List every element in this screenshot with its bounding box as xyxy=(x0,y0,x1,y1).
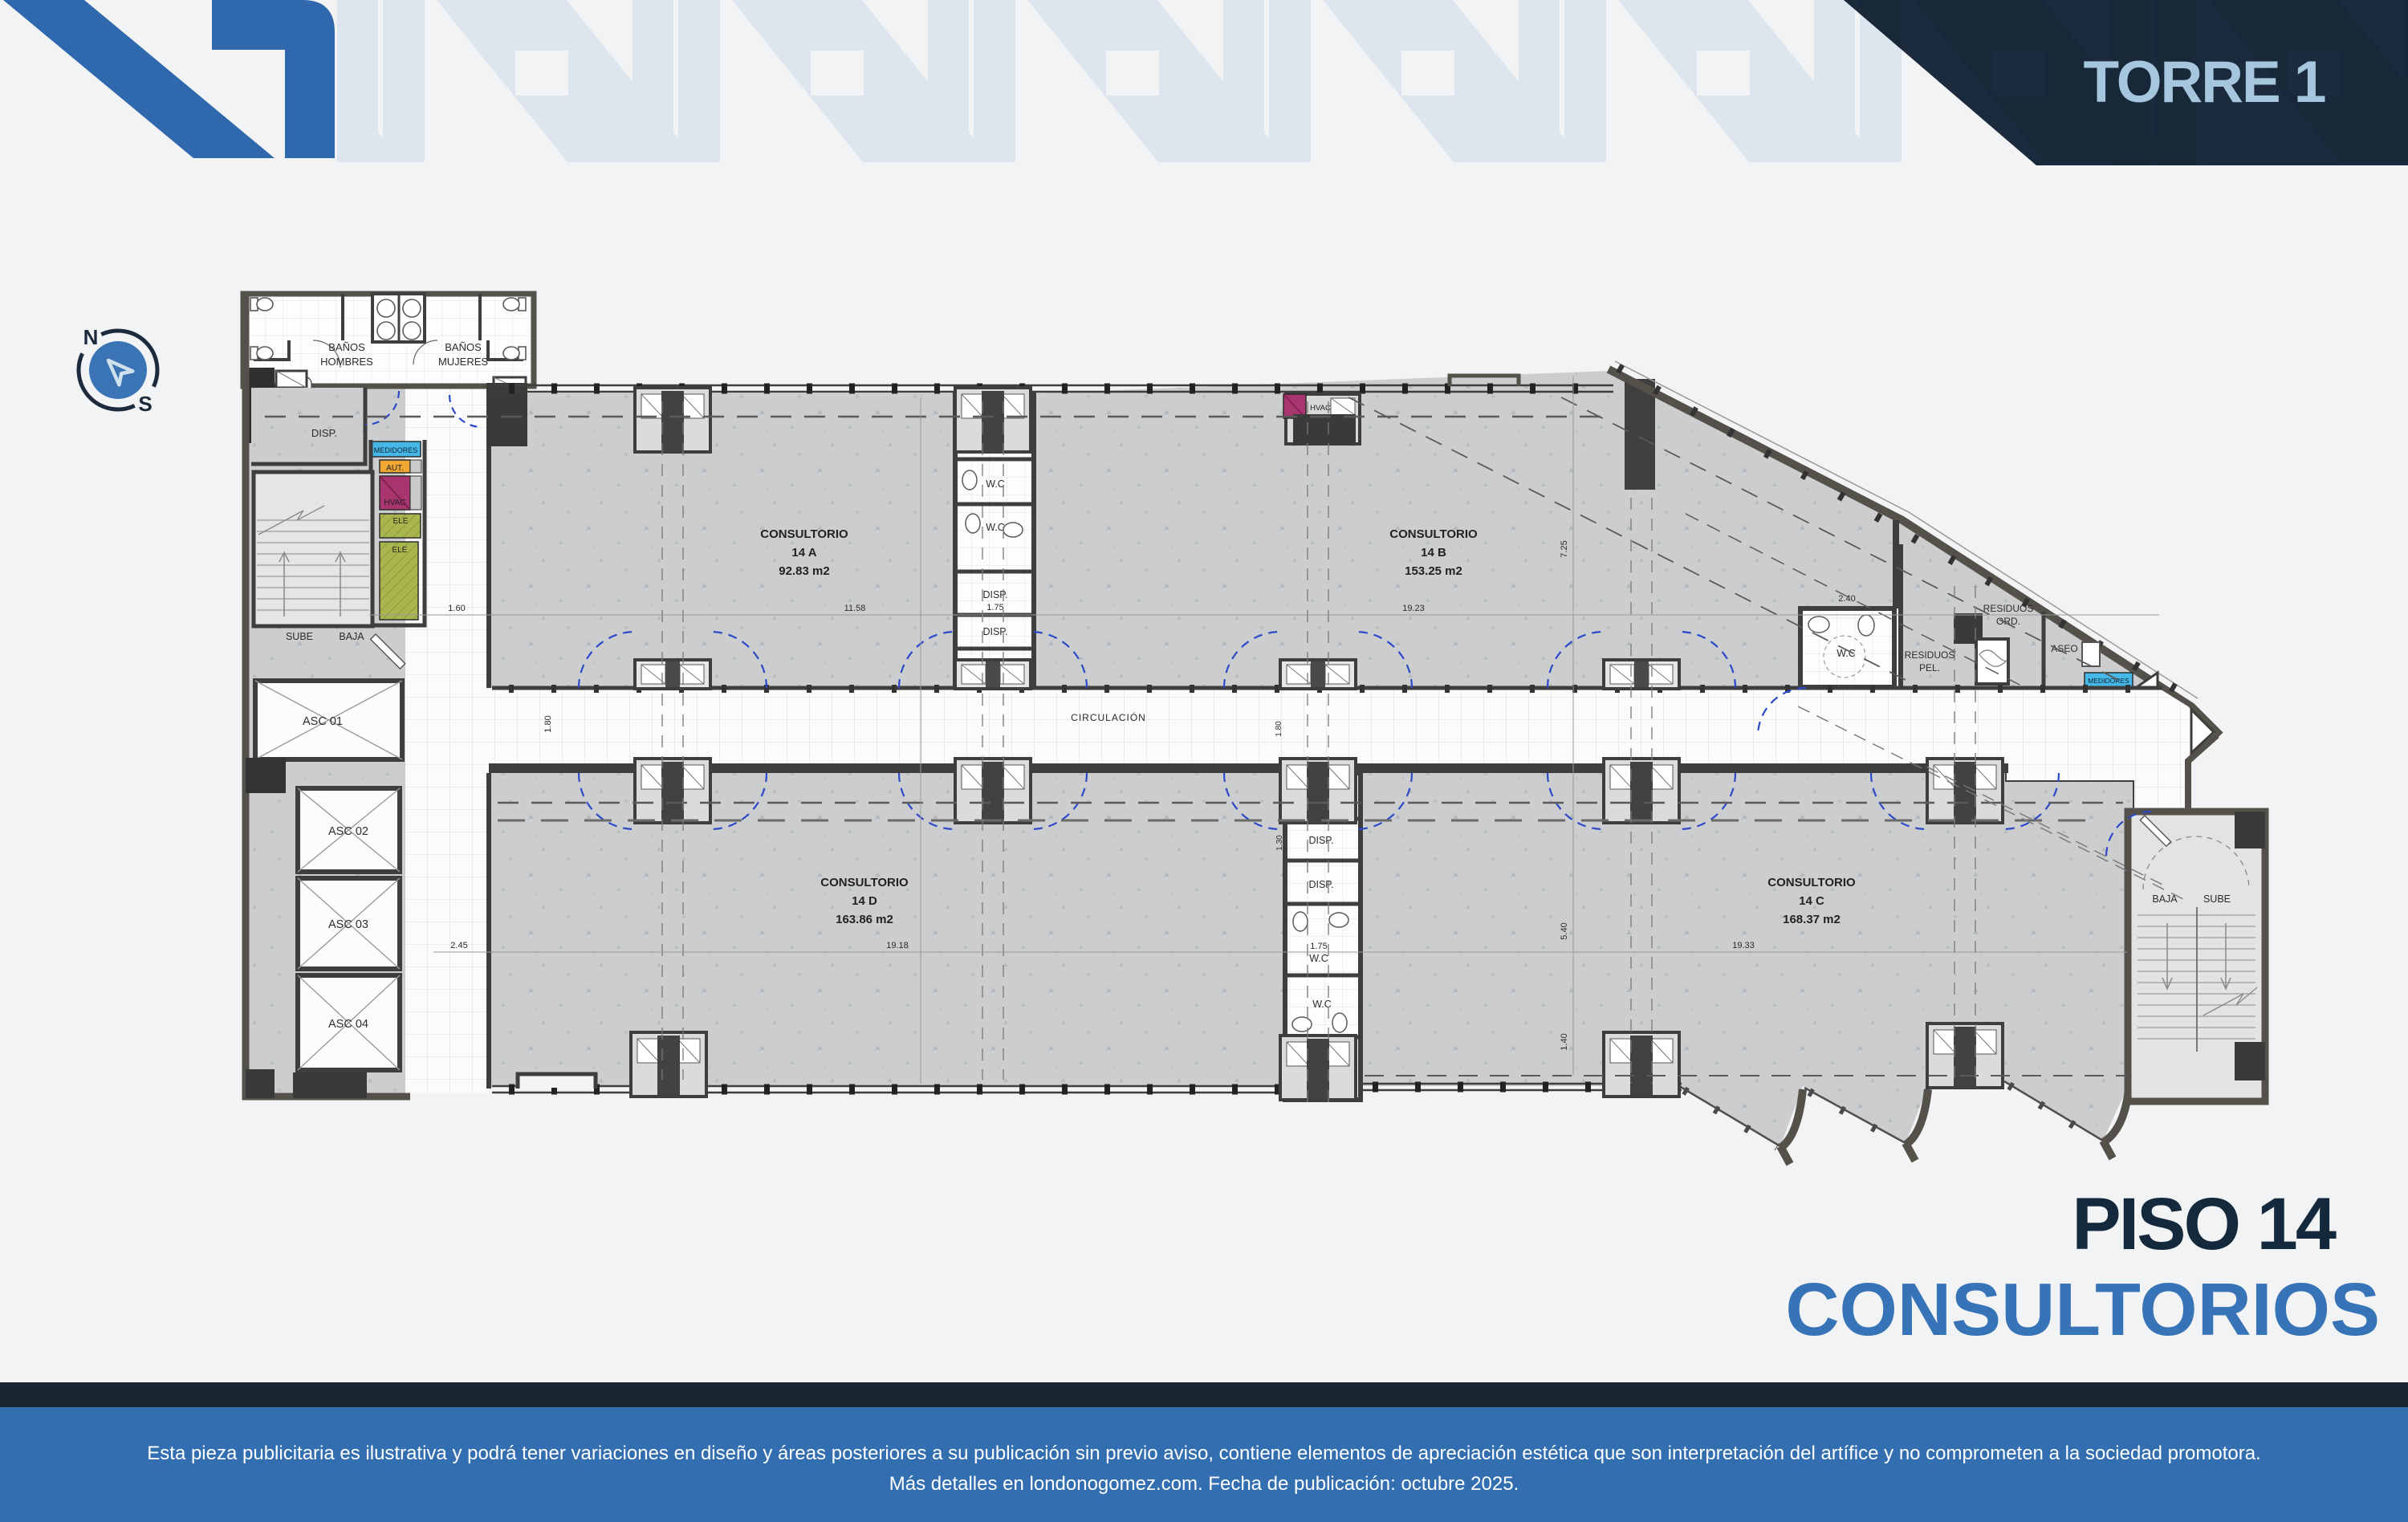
svg-text:1.30: 1.30 xyxy=(1275,835,1284,851)
svg-text:PISO 14: PISO 14 xyxy=(2072,1183,2337,1265)
svg-text:Más detalles en londonogomez.c: Más detalles en londonogomez.com. Fecha … xyxy=(889,1473,1519,1495)
svg-text:ASC 01: ASC 01 xyxy=(303,715,343,728)
svg-text:CIRCULACIÓN: CIRCULACIÓN xyxy=(1071,711,1146,723)
svg-text:168.37 m2: 168.37 m2 xyxy=(1783,913,1841,926)
svg-text:19.18: 19.18 xyxy=(886,941,909,950)
svg-text:14 B: 14 B xyxy=(1421,546,1446,560)
svg-text:HOMBRES: HOMBRES xyxy=(320,356,373,368)
svg-text:CONSULTORIO: CONSULTORIO xyxy=(760,527,848,541)
svg-text:1.80: 1.80 xyxy=(543,715,553,732)
svg-text:ASC 02: ASC 02 xyxy=(328,825,368,838)
svg-text:BAJA: BAJA xyxy=(339,631,364,642)
svg-text:HVAC: HVAC xyxy=(1310,404,1331,413)
svg-text:S: S xyxy=(138,392,152,416)
svg-text:SUBE: SUBE xyxy=(2203,893,2231,905)
svg-text:1.80: 1.80 xyxy=(1275,721,1283,737)
svg-text:MEDIDORES: MEDIDORES xyxy=(374,446,418,454)
svg-text:14 C: 14 C xyxy=(1799,894,1824,908)
svg-text:MUJERES: MUJERES xyxy=(438,356,488,368)
svg-text:TORRE 1: TORRE 1 xyxy=(2083,50,2325,115)
svg-text:BAÑOS: BAÑOS xyxy=(445,341,482,353)
svg-text:SUBE: SUBE xyxy=(286,631,313,642)
svg-text:DISP.: DISP. xyxy=(311,427,337,439)
svg-text:DISP.: DISP. xyxy=(1308,835,1333,846)
svg-text:1.40: 1.40 xyxy=(1560,1033,1569,1050)
svg-text:W.C: W.C xyxy=(986,478,1005,490)
svg-text:ASC 04: ASC 04 xyxy=(328,1018,368,1031)
svg-text:MEDIDORES: MEDIDORES xyxy=(2088,677,2129,685)
svg-text:2.45: 2.45 xyxy=(450,941,467,950)
svg-text:19.33: 19.33 xyxy=(1732,941,1755,950)
svg-text:ELE: ELE xyxy=(393,517,409,526)
svg-text:BAÑOS: BAÑOS xyxy=(328,341,365,353)
svg-text:N: N xyxy=(83,325,99,349)
svg-text:19.23: 19.23 xyxy=(1402,604,1425,613)
svg-text:CONSULTORIOS: CONSULTORIOS xyxy=(1785,1268,2380,1351)
svg-text:DISP.: DISP. xyxy=(1308,879,1333,890)
svg-text:PEL.: PEL. xyxy=(1919,662,1940,674)
svg-text:W.C: W.C xyxy=(986,522,1005,533)
svg-text:11.58: 11.58 xyxy=(844,604,866,613)
svg-text:AUT.: AUT. xyxy=(386,464,404,473)
svg-text:CONSULTORIO: CONSULTORIO xyxy=(1389,527,1478,541)
svg-text:ELE: ELE xyxy=(393,546,408,555)
svg-text:RESIDUOS: RESIDUOS xyxy=(1983,603,2034,614)
svg-text:RESIDUOS: RESIDUOS xyxy=(1905,649,1955,661)
svg-text:Esta pieza publicitaria es ilu: Esta pieza publicitaria es ilustrativa y… xyxy=(147,1443,2260,1464)
svg-text:1.75: 1.75 xyxy=(986,603,1003,612)
svg-text:ASC 03: ASC 03 xyxy=(328,918,368,931)
svg-text:CONSULTORIO: CONSULTORIO xyxy=(1767,876,1856,889)
svg-text:163.86 m2: 163.86 m2 xyxy=(836,913,893,926)
svg-text:14 A: 14 A xyxy=(791,546,816,560)
svg-text:HVAC: HVAC xyxy=(384,499,405,507)
svg-text:14 D: 14 D xyxy=(852,894,877,908)
svg-text:153.25 m2: 153.25 m2 xyxy=(1405,564,1462,578)
svg-text:2.40: 2.40 xyxy=(1838,594,1855,604)
svg-text:5.40: 5.40 xyxy=(1560,922,1569,939)
svg-text:ORD.: ORD. xyxy=(1996,616,2020,627)
svg-text:7.25: 7.25 xyxy=(1560,540,1569,557)
svg-text:92.83 m2: 92.83 m2 xyxy=(779,564,829,578)
svg-text:1.75: 1.75 xyxy=(1310,942,1327,951)
svg-text:1.60: 1.60 xyxy=(448,604,465,613)
svg-text:BAJA: BAJA xyxy=(2152,893,2178,905)
svg-text:CONSULTORIO: CONSULTORIO xyxy=(820,876,909,889)
svg-text:DISP.: DISP. xyxy=(982,626,1007,637)
svg-text:DISP.: DISP. xyxy=(982,589,1007,600)
svg-text:W.C: W.C xyxy=(1309,953,1328,964)
